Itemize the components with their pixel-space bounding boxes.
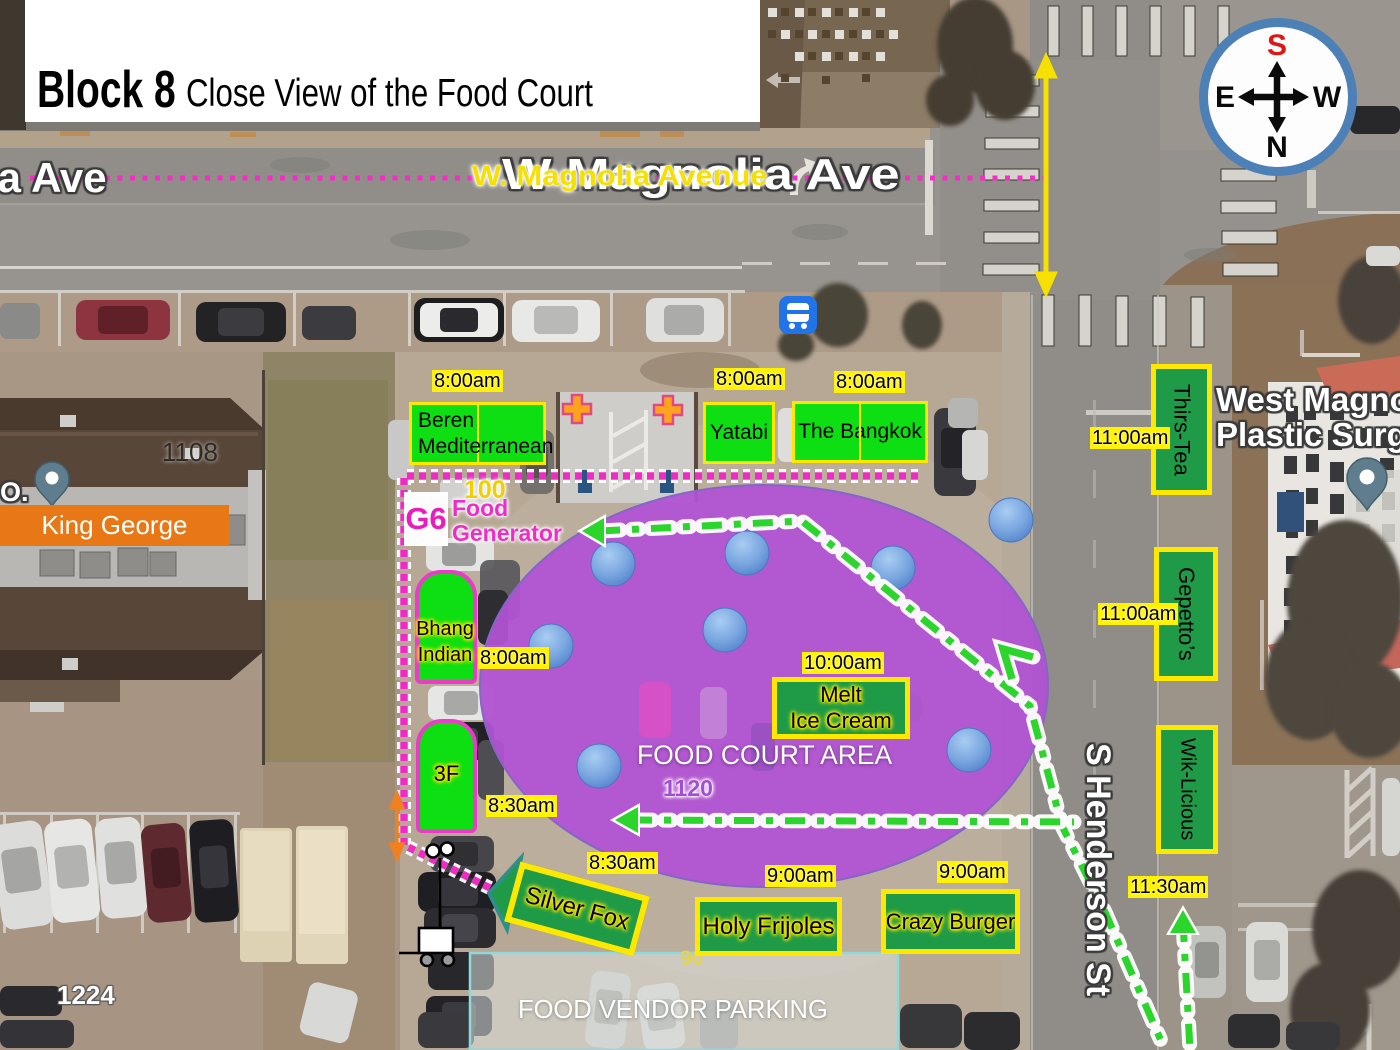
svg-text:W: W — [1313, 81, 1342, 114]
svg-text:S: S — [1267, 29, 1287, 62]
svg-text:N: N — [1266, 131, 1288, 164]
svg-text:E: E — [1215, 81, 1235, 114]
